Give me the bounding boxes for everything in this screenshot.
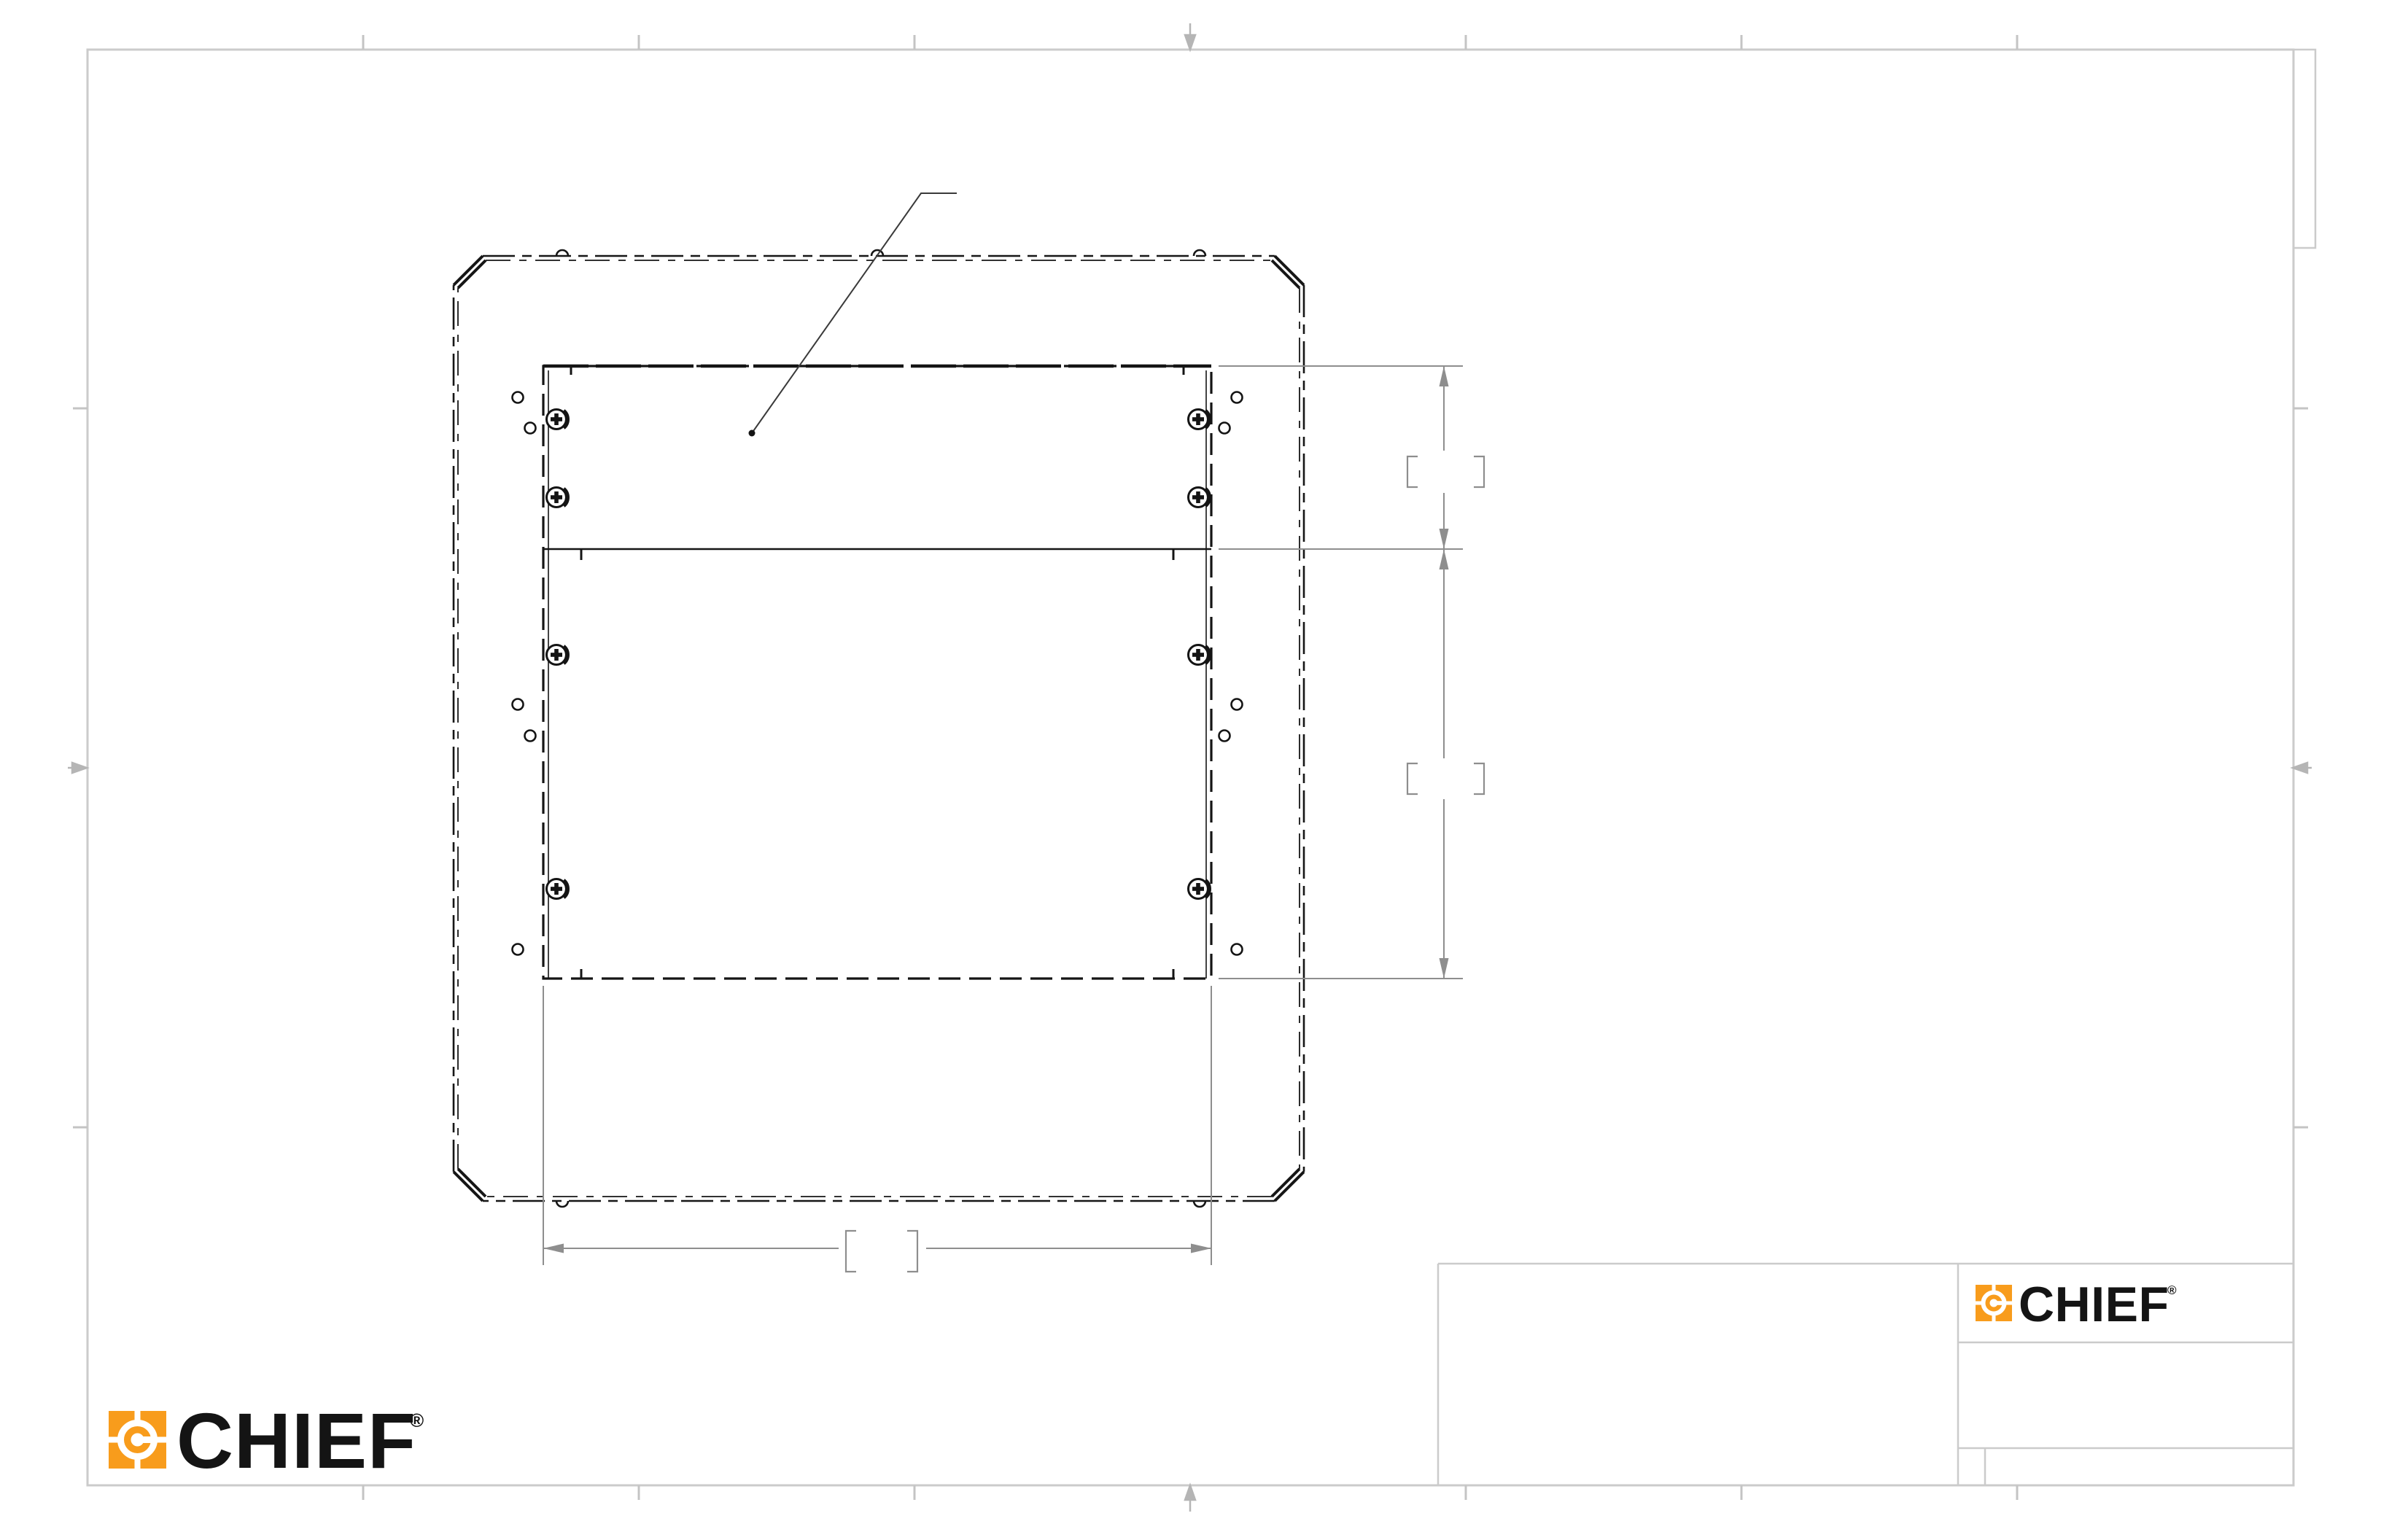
chief-logo-registered: ® (2167, 1283, 2177, 1297)
center-mark-arrows (68, 23, 2312, 1512)
screw-icon (1189, 488, 1209, 507)
hole (525, 731, 536, 742)
bracket-slot-ticks (571, 366, 1184, 979)
dimension-right-lower (1407, 549, 1484, 979)
hole (513, 944, 524, 955)
dimension-brackets (846, 1231, 917, 1272)
leader-line (749, 193, 958, 437)
chief-logo-titleblock: CHIEF ® (1976, 1277, 2177, 1332)
screw-icon (1189, 410, 1209, 429)
chief-logo-main: CHIEF ® (109, 1396, 424, 1485)
chief-logo-icon (109, 1411, 166, 1469)
leader-dot (749, 430, 756, 437)
outline-tab-bumps (556, 250, 1205, 1207)
hole (513, 699, 524, 710)
chief-logo-icon (1976, 1285, 2012, 1321)
dimension-right-upper (1407, 366, 1484, 549)
zone-ticks (73, 35, 2308, 1500)
pilot-holes (513, 392, 1243, 955)
dimensions (543, 366, 1484, 1272)
mounting-screws (547, 410, 1209, 899)
top-center-arrow-icon (1185, 23, 1195, 50)
hole (1219, 423, 1230, 434)
dimension-brackets (1407, 456, 1484, 487)
chief-logo-registered: ® (410, 1409, 424, 1431)
sheet-border (88, 50, 2315, 1485)
screw-icon (1189, 879, 1209, 899)
revision-strip (2293, 50, 2315, 248)
dimension-bottom-width (543, 1231, 1211, 1272)
hole (513, 392, 524, 403)
left-center-arrow-icon (68, 763, 87, 773)
screw-icon (547, 488, 567, 507)
display-outline-phantom (454, 250, 1304, 1207)
dimension-brackets (1407, 763, 1484, 794)
hole (1232, 392, 1243, 403)
bottom-center-arrow-icon (1185, 1485, 1195, 1512)
bracket-outline (543, 366, 1211, 979)
drawing-sheet: CHIEF ® CHIEF ® (0, 0, 2381, 1540)
screw-icon (1189, 645, 1209, 665)
hole (1219, 731, 1230, 742)
chief-logo-text: CHIEF (2019, 1277, 2170, 1332)
chief-logo-text: CHIEF (176, 1396, 416, 1485)
hole (1232, 944, 1243, 955)
hole (1232, 699, 1243, 710)
screw-icon (547, 410, 567, 429)
right-center-arrow-icon (2293, 763, 2312, 773)
chamfer-corners (454, 256, 1304, 1201)
hole (525, 423, 536, 434)
screw-icon (547, 645, 567, 665)
screw-icon (547, 879, 567, 899)
